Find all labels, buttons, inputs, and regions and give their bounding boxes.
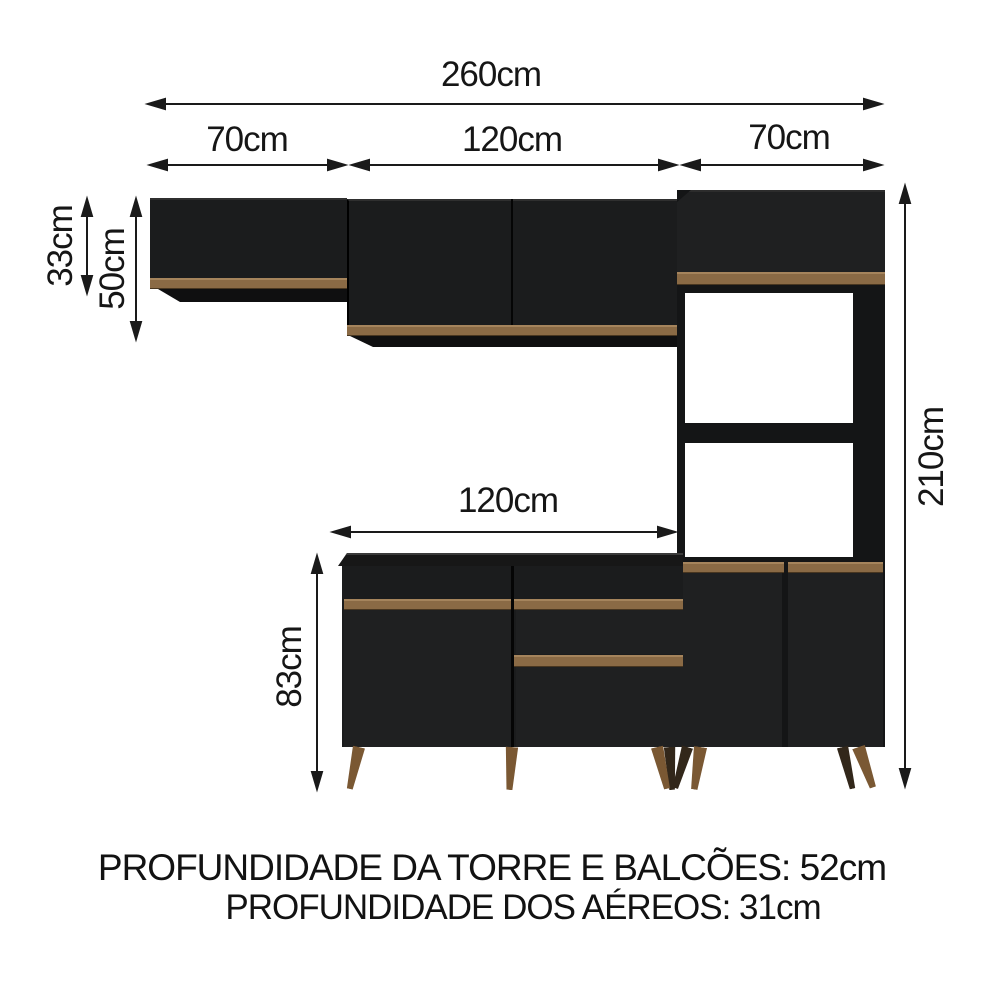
wall-cabinet-left-wood-trim [150,278,347,289]
base-cabinet-countertop [338,553,683,566]
arrow-section-middle [352,160,676,170]
depth-note-uppers: PROFUNDIDADE DOS AÉREOS: 31cm [23,888,1000,928]
dim-label-total-width: 260cm [416,57,566,93]
base-cabinet-drawer [516,610,683,654]
cabinet-leg [502,747,519,791]
arrow-base-height [312,556,322,789]
base-cabinet-door [344,610,511,747]
tower-wood-trim [677,272,885,285]
tower-base-door-right [788,573,883,747]
arrow-section-left [150,160,345,170]
arrow-base-width [333,527,675,537]
base-cabinet-lower-drawer [516,667,683,747]
cabinet-leg [343,745,366,790]
wall-cabinet-middle-wood-trim [347,325,678,336]
dim-label-upper-left-height: 33cm [43,171,79,321]
base-cabinet-wood-trim-right [514,599,683,610]
dim-label-section-middle: 120cm [437,122,587,158]
arrow-tower-height [900,186,910,786]
cabinet-leg [851,745,879,791]
dim-label-section-right: 70cm [714,120,864,156]
furniture-dimension-diagram: 260cm 70cm 120cm 70cm 33cm 50cm 47cm 41c… [0,0,1000,1000]
wall-cabinet-middle-door-seam [511,199,513,325]
dim-label-section-left: 70cm [172,122,322,158]
wall-cabinet-left-door [150,198,347,278]
dim-label-base-height: 83cm [272,592,308,742]
arrow-total-width [148,99,881,109]
wall-cabinet-middle-underside [347,336,678,347]
tower-base-wood-trim-left [683,562,784,573]
wall-cabinet-left-underside [150,289,347,302]
arrow-upper-middle-height [131,199,141,339]
base-cabinet-wood-trim-drawer [514,655,683,667]
tower-base-door-left [679,573,782,747]
tower-upper-niche [685,293,853,423]
dim-label-base-width: 120cm [433,483,583,519]
tower-lower-niche [685,443,853,557]
dim-label-upper-middle-height: 50cm [95,194,131,344]
dim-label-tower-height: 210cm [914,382,950,532]
base-cabinet-section-seam [511,566,514,747]
depth-note-tower-counters: PROFUNDIDADE DA TORRE E BALCÕES: 52cm [0,847,992,889]
tower-base-wood-trim-right [788,562,883,573]
tower-top-door [677,190,885,272]
base-cabinet-wood-trim-left [344,599,511,610]
arrow-section-right [683,160,881,170]
arrow-upper-left-height [82,199,92,293]
